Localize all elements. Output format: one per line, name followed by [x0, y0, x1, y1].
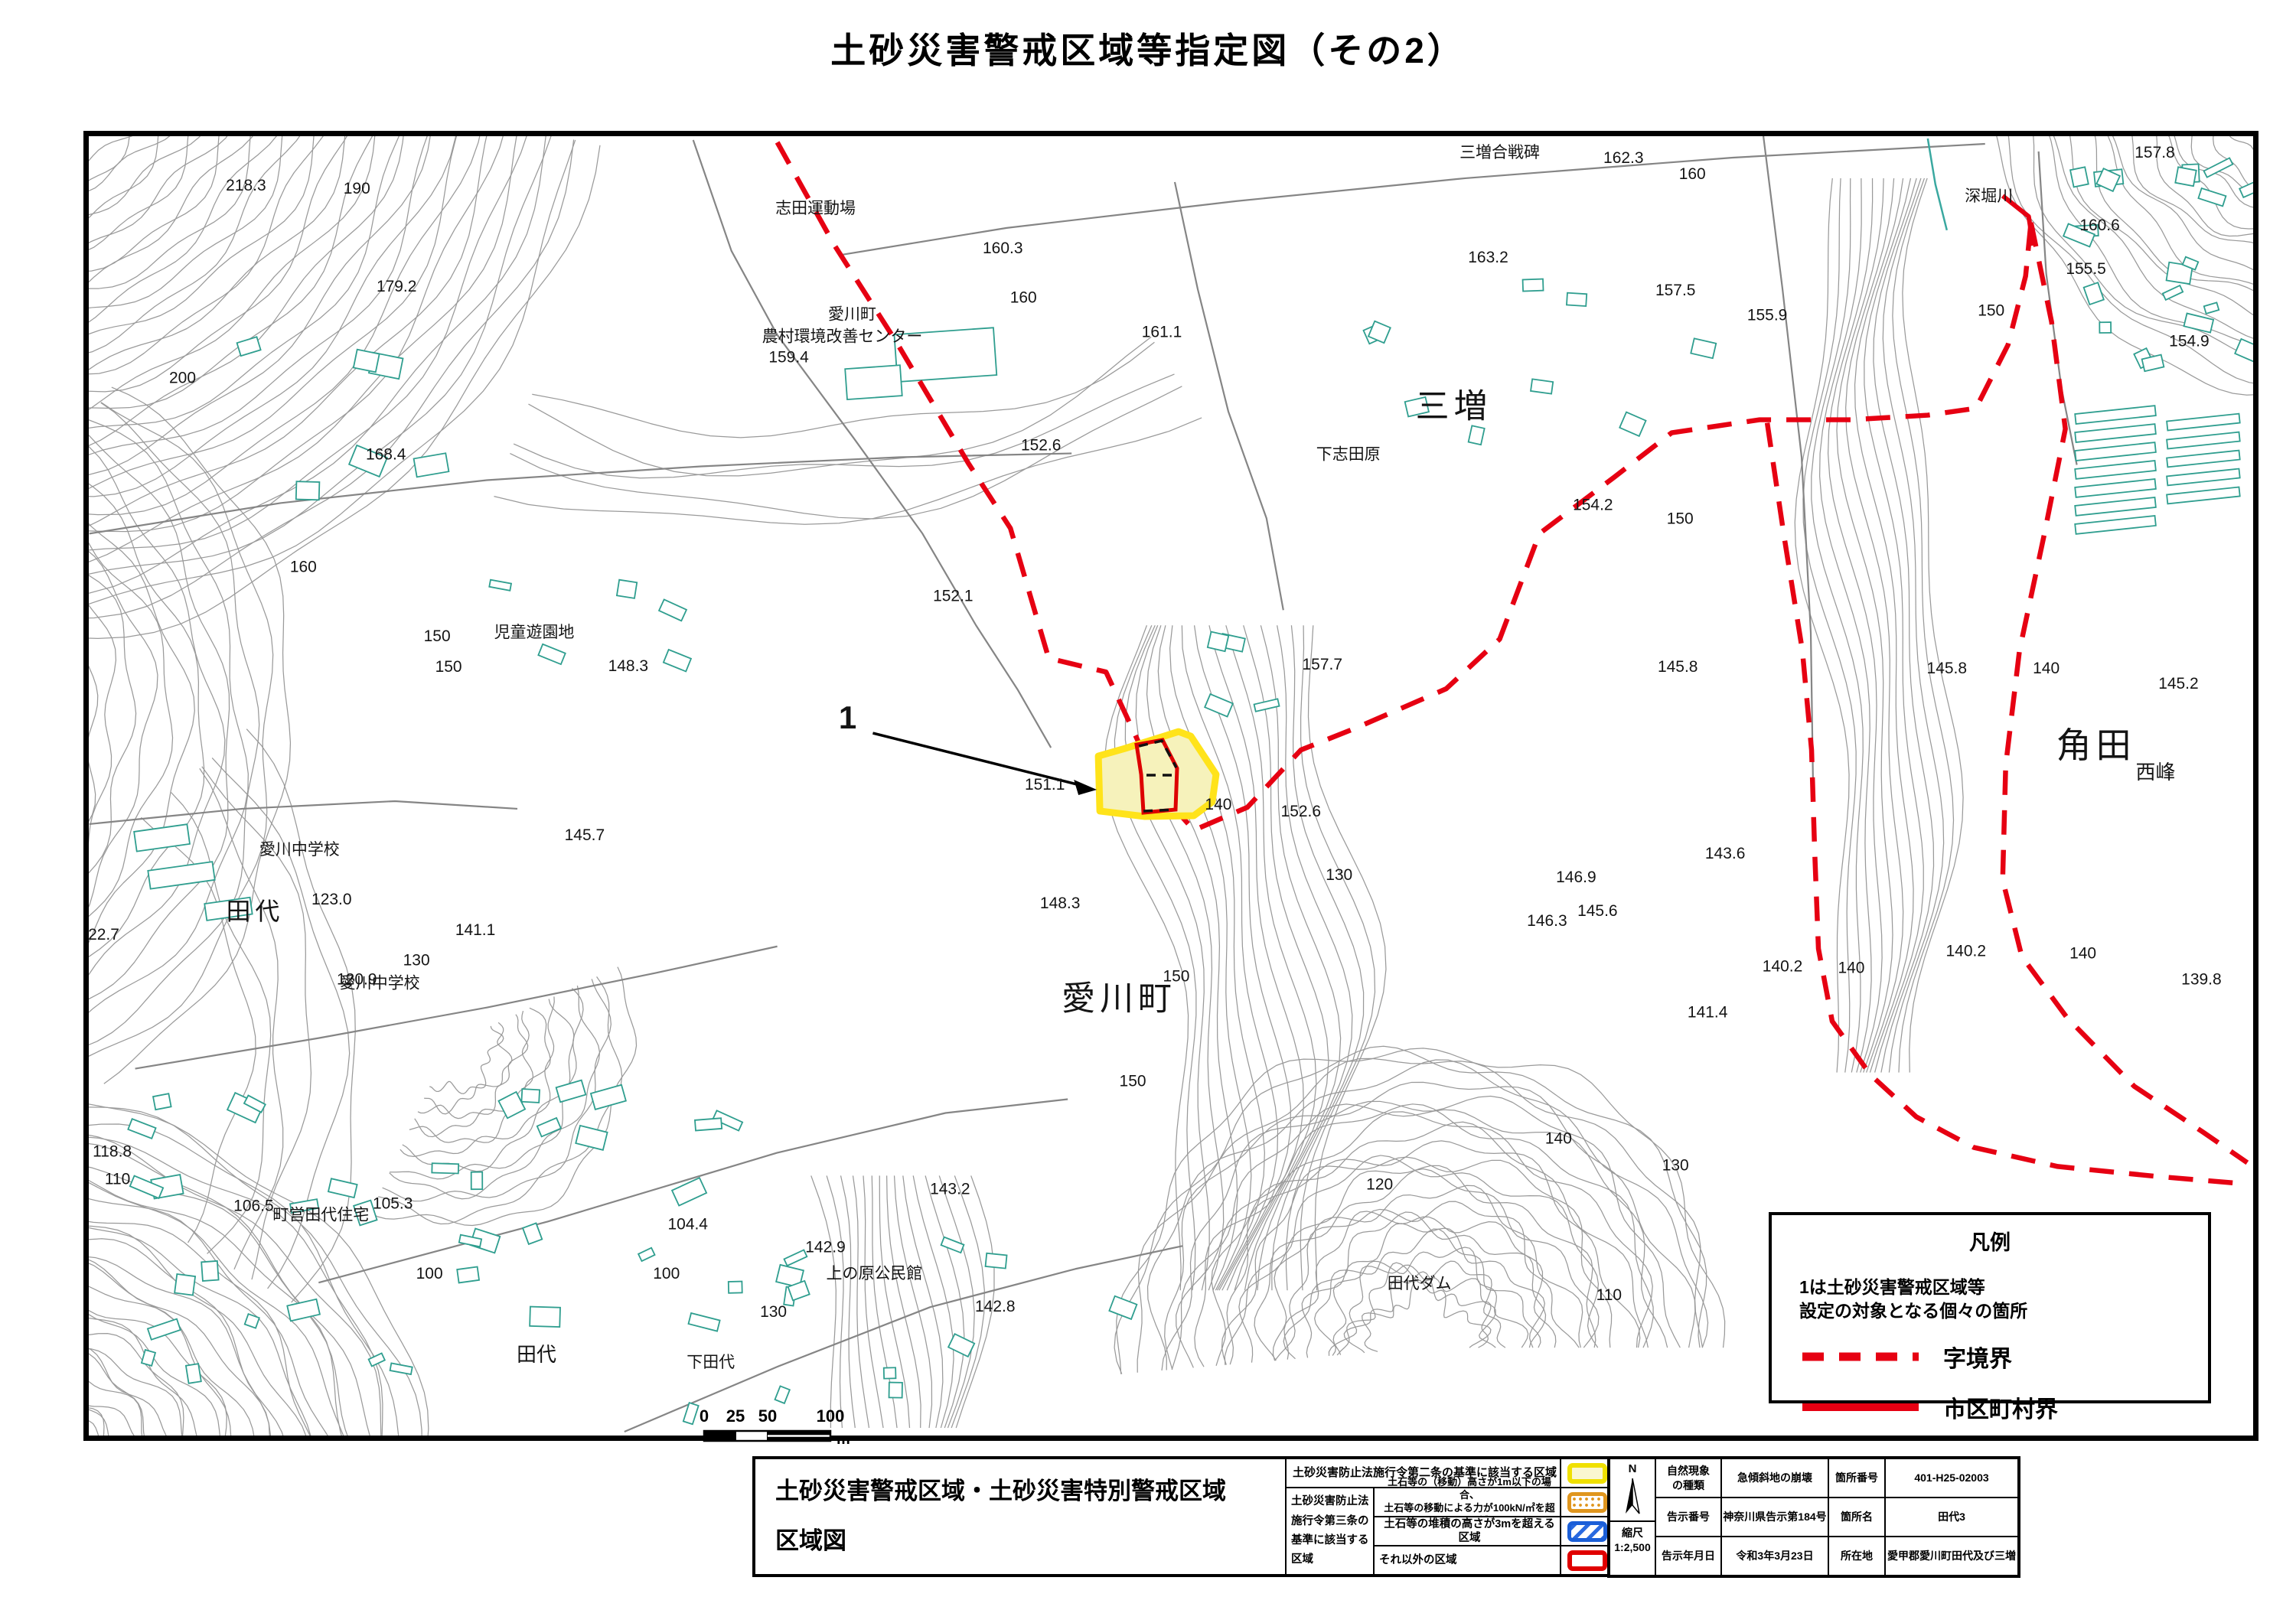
map-label: 160.3 [983, 240, 1022, 257]
map-label: 143.6 [1705, 845, 1745, 862]
info-table: N 縮尺 1:2,500 自然現象の種類 急傾斜地の崩壊 箇所番号 401-H2… [1607, 1456, 2020, 1578]
site-number-label: 箇所番号 [1829, 1459, 1884, 1497]
map-legend-title: 凡例 [1772, 1226, 2208, 1256]
map-label: 田代 [517, 1343, 556, 1366]
map-label: 104.4 [668, 1215, 709, 1233]
scale-bar: 0 25 50 100 m [685, 1408, 876, 1455]
map-label: 142.9 [805, 1238, 845, 1256]
map-label: 140 [1838, 960, 1864, 977]
legend-row-municipal-boundary: 市区町村界 [1799, 1390, 2208, 1424]
map-label: 148.3 [608, 657, 648, 675]
map-legend-note-line2: 設定の対象となる個々の箇所 [1799, 1301, 2027, 1321]
orange-dotted-swatch [1561, 1488, 1613, 1516]
map-label: 田代 [226, 898, 284, 925]
map-label: 154.9 [2169, 333, 2209, 350]
map-legend-note-line1: 1は土砂災害警戒区域等 [1799, 1277, 1985, 1297]
map-label: 愛川中学校 [259, 841, 340, 859]
solid-red-line-icon [1799, 1402, 1922, 1413]
map-label: 155.5 [2066, 260, 2105, 278]
map-label: 152.6 [1281, 803, 1321, 820]
map-label: 163.2 [1468, 249, 1508, 266]
svg-text:25: 25 [726, 1408, 745, 1426]
north-scale-cell: N 縮尺 1:2,500 [1610, 1459, 1655, 1575]
map-label: 200 [169, 370, 196, 387]
map-label: 141.4 [1688, 1004, 1728, 1022]
map-label: 154.2 [1573, 496, 1613, 513]
svg-text:50: 50 [758, 1408, 777, 1426]
zone-table-title-line1: 土砂災害警戒区域・土砂災害特別警戒区域 [775, 1477, 1226, 1507]
map-label: 三増 [1416, 388, 1492, 425]
map-label: 160.6 [2079, 217, 2119, 234]
aza-boundary-label: 字境界 [1943, 1340, 2012, 1374]
municipal-boundary-label: 市区町村界 [1943, 1390, 2058, 1424]
map-label: 160 [290, 558, 317, 575]
map-label: 志田運動場 [775, 200, 856, 217]
map-label: 118.8 [93, 1142, 132, 1160]
map-label: 150 [1667, 510, 1694, 527]
map-label: 106.5 [233, 1197, 273, 1214]
map-frame: 218.3190179.2200168.4160150志田運動場愛川町農村環境改… [83, 131, 2258, 1441]
map-label: 157.5 [1655, 282, 1695, 299]
map-label: 下志田原 [1316, 446, 1381, 464]
map-label: 162.3 [1603, 149, 1643, 167]
map-label: 130 [1326, 866, 1352, 884]
map-label: 161.1 [1142, 324, 1182, 341]
map-label: 150 [1978, 302, 2004, 320]
zone-classification-table: 土砂災害警戒区域・土砂災害特別警戒区域 区域図 土砂災害防止法施行令第二条の基準… [752, 1456, 1616, 1577]
map-label: 105.3 [373, 1194, 413, 1212]
blue-hatched-swatch [1561, 1517, 1613, 1545]
map-label: 140 [1545, 1129, 1572, 1147]
other-zone-label: それ以外の区域 [1375, 1546, 1560, 1574]
map-label: 児童遊園地 [494, 624, 575, 641]
map-legend-box: 凡例 1は土砂災害警戒区域等 設定の対象となる個々の箇所 字境界 市区町村界 [1769, 1212, 2211, 1403]
legend-row-aza-boundary: 字境界 [1799, 1340, 2208, 1374]
svg-text:100: 100 [817, 1408, 845, 1426]
phenomenon-type-label: 自然現象の種類 [1656, 1459, 1720, 1497]
article3-group-label: 土砂災害防止法 施行令第三条の 基準に該当する 区域 [1287, 1488, 1373, 1574]
svg-text:m: m [837, 1431, 850, 1448]
map-label: 130 [760, 1303, 787, 1321]
map-label: 110 [105, 1170, 130, 1188]
map-label: 農村環境改善センター [762, 328, 923, 346]
location-value: 愛甲郡愛川町田代及び三増 [1886, 1537, 2017, 1575]
map-label: 152.1 [933, 587, 973, 605]
map-label: 145.6 [1577, 902, 1617, 920]
map-label: 町営田代住宅 [272, 1206, 369, 1224]
map-label: 150 [424, 627, 451, 645]
map-label: 146.3 [1527, 912, 1567, 930]
map-label: 145.2 [2158, 675, 2198, 693]
zone-table-title-line2: 区域図 [775, 1527, 846, 1556]
map-label: 145.7 [565, 826, 605, 844]
map-label: 139.8 [2181, 971, 2221, 989]
map-label: 190 [344, 180, 370, 197]
map-label: 120 [1366, 1175, 1393, 1193]
map-label: 下田代 [687, 1354, 735, 1371]
notice-number-value: 神奈川県告示第184号 [1722, 1498, 1828, 1536]
map-label: 150 [1120, 1073, 1146, 1090]
map-legend-note: 1は土砂災害警戒区域等 設定の対象となる個々の箇所 [1799, 1276, 2208, 1323]
map-label: 130 [1662, 1156, 1689, 1174]
map-label: 100 [416, 1265, 443, 1282]
map-label: 三増合戦碑 [1459, 144, 1540, 161]
debris-move-zone-label: 土石等の（移動）高さが1m以下の場合、 土石等の移動による力が100kN/㎡を超… [1375, 1488, 1560, 1516]
map-label: 100 [653, 1265, 680, 1282]
map-label: 218.3 [226, 177, 266, 194]
yellow-zone-swatch [1561, 1459, 1613, 1487]
map-label: 142.8 [975, 1298, 1015, 1315]
map-label: 145.8 [1927, 660, 1967, 677]
site-name-value: 田代3 [1886, 1498, 2017, 1536]
map-label: 西峰 [2136, 761, 2176, 784]
map-label: 1 [839, 699, 861, 735]
map-label: 140 [2069, 945, 2096, 963]
map-label: 122.7 [89, 926, 119, 943]
notice-date-value: 令和3年3月23日 [1722, 1537, 1828, 1575]
map-label: 140 [1205, 796, 1231, 813]
map-label: 148.3 [1040, 895, 1080, 912]
map-label: 150 [1163, 968, 1189, 986]
map-label: 152.6 [1021, 437, 1061, 455]
map-label: 159.4 [768, 349, 809, 367]
map-label: 130 [403, 952, 430, 970]
red-outline-swatch [1561, 1546, 1613, 1574]
scale-label: 縮尺 [1622, 1527, 1643, 1540]
site-name-label: 箇所名 [1829, 1498, 1884, 1536]
north-arrow-icon [1623, 1477, 1642, 1517]
map-label: 愛川町 [828, 306, 876, 324]
map-label: 141.1 [455, 921, 495, 939]
map-label: 160 [1010, 289, 1037, 307]
map-label: 157.7 [1303, 656, 1342, 673]
dashed-red-line-icon [1799, 1351, 1922, 1362]
map-label: 愛川町 [1062, 980, 1176, 1018]
map-label: 上の原公民館 [827, 1265, 923, 1282]
map-label: 150 [435, 658, 462, 676]
scale-value: 1:2,500 [1614, 1541, 1650, 1555]
scale-tick-0: 0 [700, 1408, 709, 1426]
page-title: 土砂災害警戒区域等指定図（その2） [0, 23, 2296, 73]
notice-number-label: 告示番号 [1656, 1498, 1720, 1536]
map-label: 157.8 [2135, 144, 2174, 161]
map-label: 140.2 [1946, 943, 1986, 960]
map-label: 155.9 [1747, 307, 1787, 324]
map-label: 140 [2033, 660, 2060, 677]
map-label: 143.2 [930, 1180, 970, 1198]
map-label: 123.0 [311, 891, 351, 908]
map-label: 140.2 [1763, 958, 1802, 976]
phenomenon-type-value: 急傾斜地の崩壊 [1722, 1459, 1828, 1497]
map-label: 160 [1679, 165, 1706, 183]
notice-date-label: 告示年月日 [1656, 1537, 1720, 1575]
map-label: 151.1 [1025, 776, 1065, 794]
map-label: 深堀川 [1965, 187, 2013, 205]
map-label: 110 [1596, 1286, 1622, 1304]
map-label: 146.9 [1556, 869, 1596, 886]
debris-height-zone-label: 土石等の堆積の高さが3mを超える区域 [1375, 1517, 1560, 1545]
map-label: 168.4 [366, 446, 406, 464]
north-label: N [1629, 1462, 1637, 1477]
map-label: 角田 [2056, 725, 2136, 765]
map-label: 145.8 [1658, 658, 1698, 676]
map-label: 田代ダム [1388, 1275, 1452, 1292]
zone-table-title: 土砂災害警戒区域・土砂災害特別警戒区域 区域図 [755, 1459, 1285, 1574]
map-label: 179.2 [377, 278, 416, 295]
location-label: 所在地 [1829, 1537, 1884, 1575]
site-number-value: 401-H25-02003 [1886, 1459, 2017, 1497]
map-label: 120.9 [337, 971, 377, 989]
hazard-map-page: 土砂災害警戒区域等指定図（その2） 218.3190179.2200168.41… [0, 0, 2296, 1623]
